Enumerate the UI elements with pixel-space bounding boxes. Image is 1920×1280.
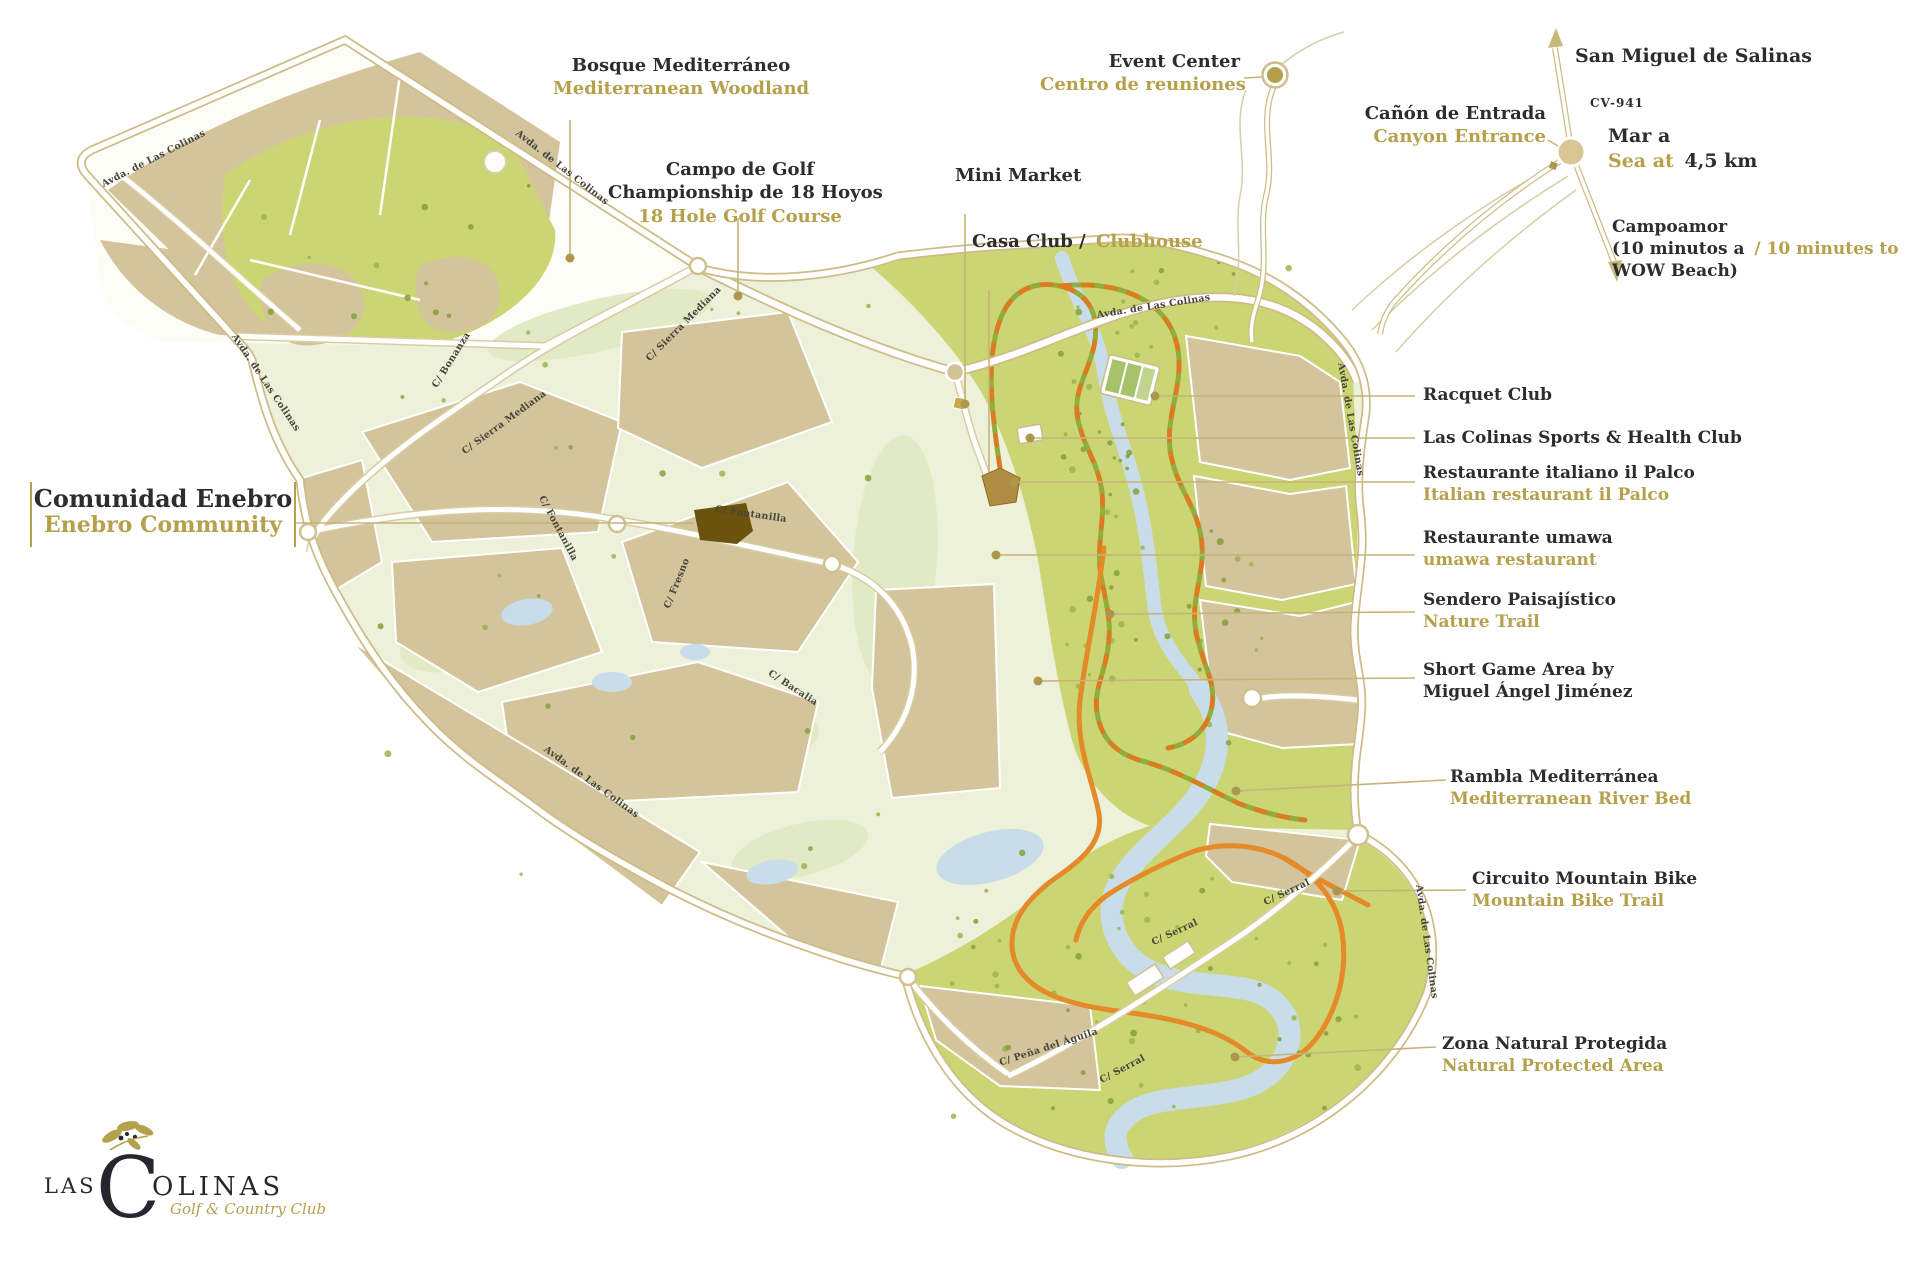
label-campoamor: Campoamor (10 minutos a / 10 minutes to … [1612, 216, 1899, 282]
leader-event-center [1244, 77, 1262, 78]
label-short-game-area: Short Game Area by Miguel Ángel Jiménez [1423, 659, 1632, 703]
label-mountain-bike-trail: Circuito Mountain Bike Mountain Bike Tra… [1472, 868, 1697, 912]
label-title: Casa Club / [972, 231, 1086, 252]
label-subtitle: Mediterranean Woodland [550, 77, 812, 100]
label-subtitle: 18 Hole Golf Course [608, 205, 872, 228]
label-line-es: (10 minutos a [1612, 239, 1744, 259]
label-title2: Championship de 18 Hoyos [608, 181, 872, 204]
label-title: Bosque Mediterráneo [550, 54, 812, 77]
label-title: Cañón de Entrada [1346, 102, 1546, 125]
label-subtitle: Nature Trail [1423, 611, 1616, 633]
label-title: Sendero Paisajístico [1423, 589, 1616, 611]
label-protected-area: Zona Natural Protegida Natural Protected… [1442, 1033, 1667, 1077]
label-restaurant-umawa: Restaurante umawa umawa restaurant [1423, 527, 1613, 571]
label-restaurant-il-palco: Restaurante italiano il Palco Italian re… [1423, 462, 1695, 506]
label-title: Las Colinas Sports & Health Club [1423, 427, 1742, 449]
label-sports-health-club: Las Colinas Sports & Health Club [1423, 427, 1742, 449]
label-distance: 4,5 km [1684, 150, 1757, 172]
label-subtitle: Centro de reuniones [1040, 73, 1240, 96]
label-casa-club: Casa Club / Clubhouse [972, 230, 1203, 253]
resort-map-page: Bosque Mediterráneo Mediterranean Woodla… [0, 0, 1920, 1280]
label-road-cv941: CV-941 [1590, 96, 1644, 112]
event-center-dot [1267, 67, 1283, 83]
label-subtitle: Mountain Bike Trail [1472, 890, 1697, 912]
label-subtitle: Enebro Community [32, 512, 294, 538]
label-enebro-community: Comunidad Enebro Enebro Community [30, 482, 296, 547]
label-event-center: Event Center Centro de reuniones [1040, 50, 1240, 97]
label-subtitle: Clubhouse [1096, 231, 1203, 252]
label-san-miguel: San Miguel de Salinas [1575, 44, 1812, 69]
label-subtitle: Natural Protected Area [1442, 1055, 1667, 1077]
label-subtitle: Mediterranean River Bed [1450, 788, 1691, 810]
label-title: Campo de Golf [608, 158, 872, 181]
label-title: Restaurante italiano il Palco [1423, 462, 1695, 484]
entrance-roundabout [1557, 138, 1585, 166]
label-subtitle: Canyon Entrance [1346, 125, 1546, 148]
label-sea-distance: Mar a Sea at 4,5 km [1608, 124, 1757, 173]
label-line3: WOW Beach) [1612, 260, 1899, 282]
label-title: Event Center [1040, 50, 1240, 73]
logo-tagline: Golf & Country Club [170, 1200, 326, 1218]
label-title: CV-941 [1590, 96, 1644, 112]
label-subtitle: Sea at [1608, 150, 1674, 172]
label-title2: Miguel Ángel Jiménez [1423, 681, 1632, 703]
label-title: Mar a [1608, 124, 1757, 149]
label-title: Short Game Area by [1423, 659, 1632, 681]
logo-word-start: LAS [44, 1174, 97, 1198]
label-title: San Miguel de Salinas [1575, 44, 1812, 69]
label-golf-course: Campo de Golf Championship de 18 Hoyos 1… [608, 158, 872, 228]
resort-map [0, 0, 1920, 1280]
las-colinas-logo: LAS C OLINAS Golf & Country Club [44, 1128, 344, 1248]
label-racquet-club: Racquet Club [1423, 384, 1552, 406]
label-title: Campoamor [1612, 216, 1899, 238]
label-canyon-entrance: Cañón de Entrada Canyon Entrance [1346, 102, 1546, 149]
label-line-en: / 10 minutes to [1754, 239, 1898, 259]
label-title: Zona Natural Protegida [1442, 1033, 1667, 1055]
leader-mtb [1337, 890, 1466, 891]
label-subtitle: umawa restaurant [1423, 549, 1613, 571]
label-title: Restaurante umawa [1423, 527, 1613, 549]
label-mini-market: Mini Market [955, 164, 1081, 187]
logo-initial: C [96, 1146, 160, 1230]
label-rambla: Rambla Mediterránea Mediterranean River … [1450, 766, 1691, 810]
leader-canyon [1548, 140, 1558, 146]
label-title: Mini Market [955, 164, 1081, 187]
label-title: Racquet Club [1423, 384, 1552, 406]
label-title: Comunidad Enebro [32, 486, 294, 512]
label-title: Circuito Mountain Bike [1472, 868, 1697, 890]
arrow-san-miguel [1548, 28, 1563, 48]
label-bosque-mediterraneo: Bosque Mediterráneo Mediterranean Woodla… [550, 54, 812, 101]
label-nature-trail: Sendero Paisajístico Nature Trail [1423, 589, 1616, 633]
logo-word-end: OLINAS [152, 1172, 284, 1202]
label-subtitle: Italian restaurant il Palco [1423, 484, 1695, 506]
label-title: Rambla Mediterránea [1450, 766, 1691, 788]
